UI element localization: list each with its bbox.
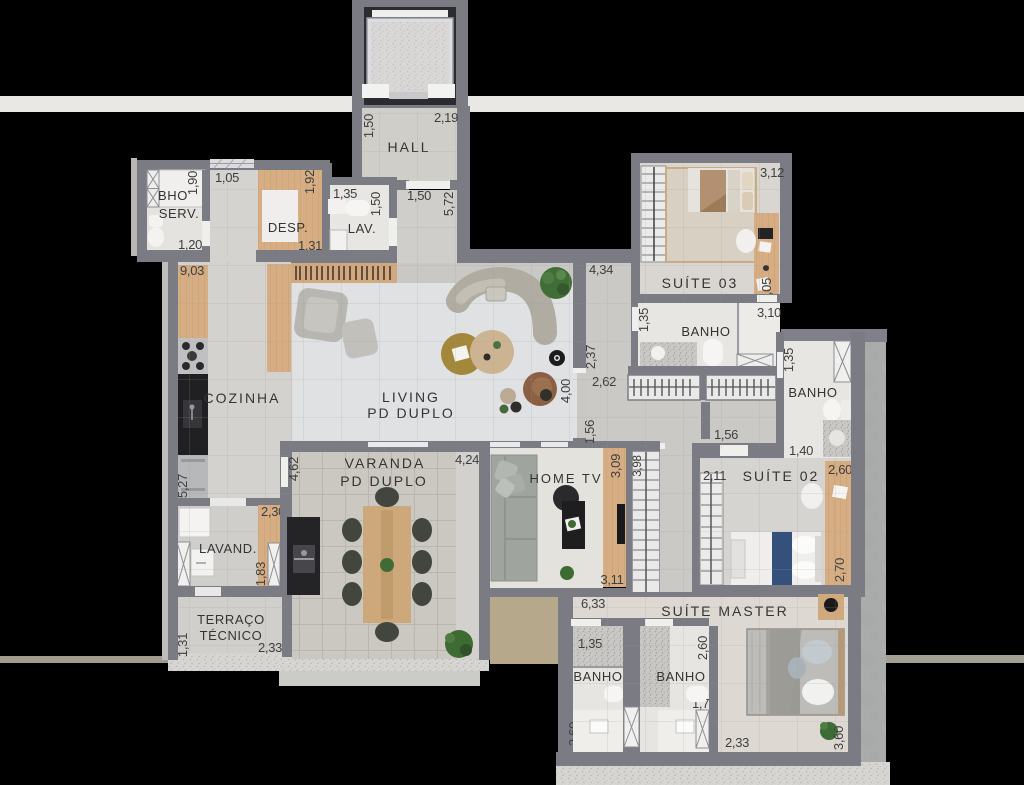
- svg-text:1,35: 1,35: [333, 186, 357, 201]
- svg-text:1,20: 1,20: [178, 237, 202, 252]
- svg-text:DESP.: DESP.: [268, 220, 308, 235]
- svg-text:VARANDA: VARANDA: [345, 455, 426, 471]
- svg-text:3,98: 3,98: [632, 455, 644, 476]
- svg-text:SERV.: SERV.: [159, 206, 200, 221]
- svg-text:BANHO: BANHO: [788, 385, 837, 400]
- svg-text:3,09: 3,09: [608, 454, 623, 478]
- svg-text:3,10: 3,10: [757, 305, 781, 320]
- svg-text:1,92: 1,92: [302, 170, 317, 194]
- svg-text:PD DUPLO: PD DUPLO: [340, 473, 428, 489]
- svg-text:1,90: 1,90: [185, 171, 200, 195]
- svg-text:1,40: 1,40: [789, 443, 813, 458]
- svg-text:LAV.: LAV.: [348, 221, 376, 236]
- svg-text:1,50: 1,50: [368, 192, 383, 216]
- svg-text:1,35: 1,35: [636, 308, 651, 332]
- svg-text:BHO: BHO: [158, 188, 188, 203]
- svg-text:4,24: 4,24: [455, 452, 479, 467]
- svg-text:HOME TV: HOME TV: [530, 471, 603, 486]
- svg-text:1,35: 1,35: [781, 348, 796, 372]
- svg-text:BANHO: BANHO: [681, 324, 730, 339]
- svg-text:3,11: 3,11: [600, 572, 623, 587]
